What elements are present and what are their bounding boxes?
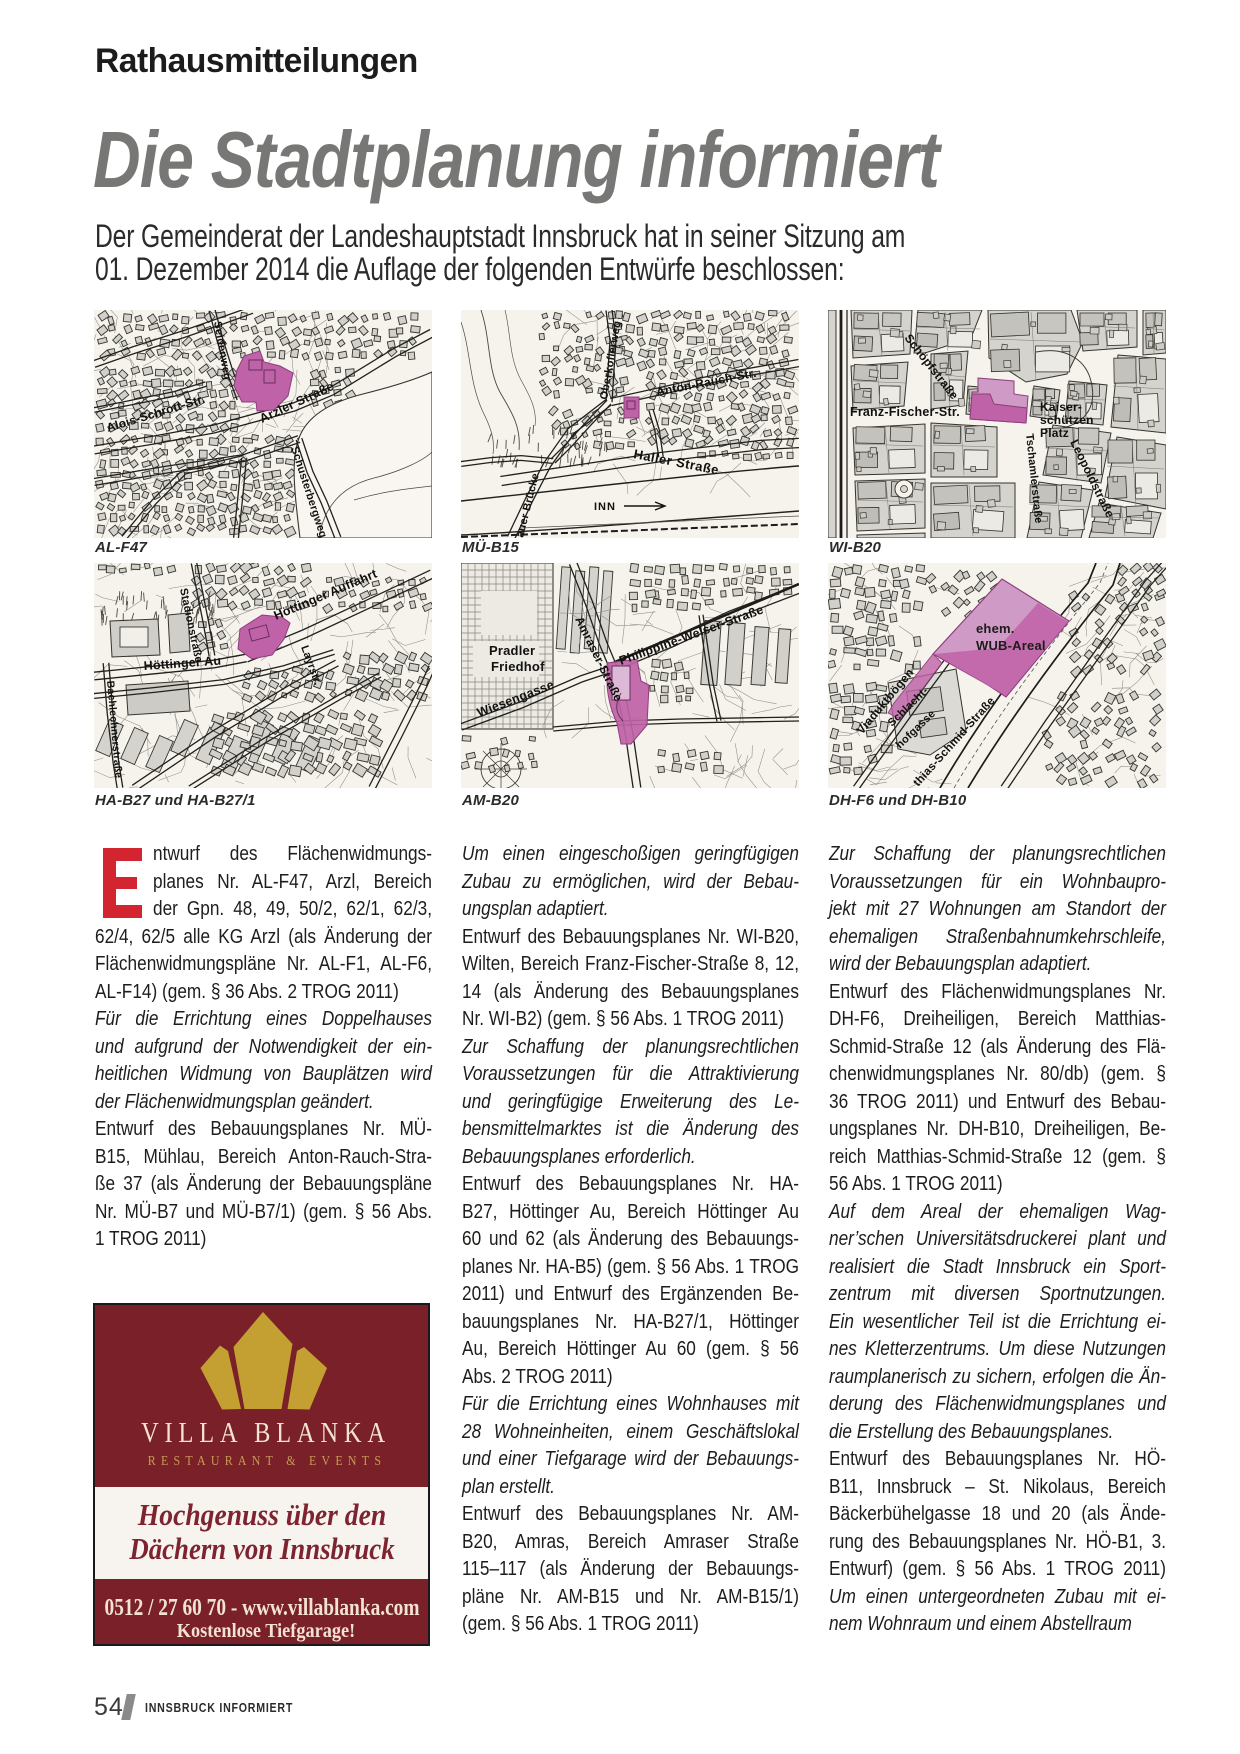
svg-text:Kaiser-: Kaiser- (1040, 400, 1082, 414)
svg-text:Pradler: Pradler (489, 643, 535, 658)
svg-text:WUB-Areal: WUB-Areal (976, 638, 1046, 653)
svg-text:Franz-Fischer-Str.: Franz-Fischer-Str. (850, 405, 960, 419)
svg-text:schützen: schützen (1040, 413, 1094, 427)
svg-text:Platz: Platz (1040, 426, 1069, 440)
svg-text:INN: INN (594, 501, 616, 513)
svg-text:ehem.: ehem. (976, 621, 1015, 636)
svg-text:Friedhof: Friedhof (491, 659, 545, 674)
